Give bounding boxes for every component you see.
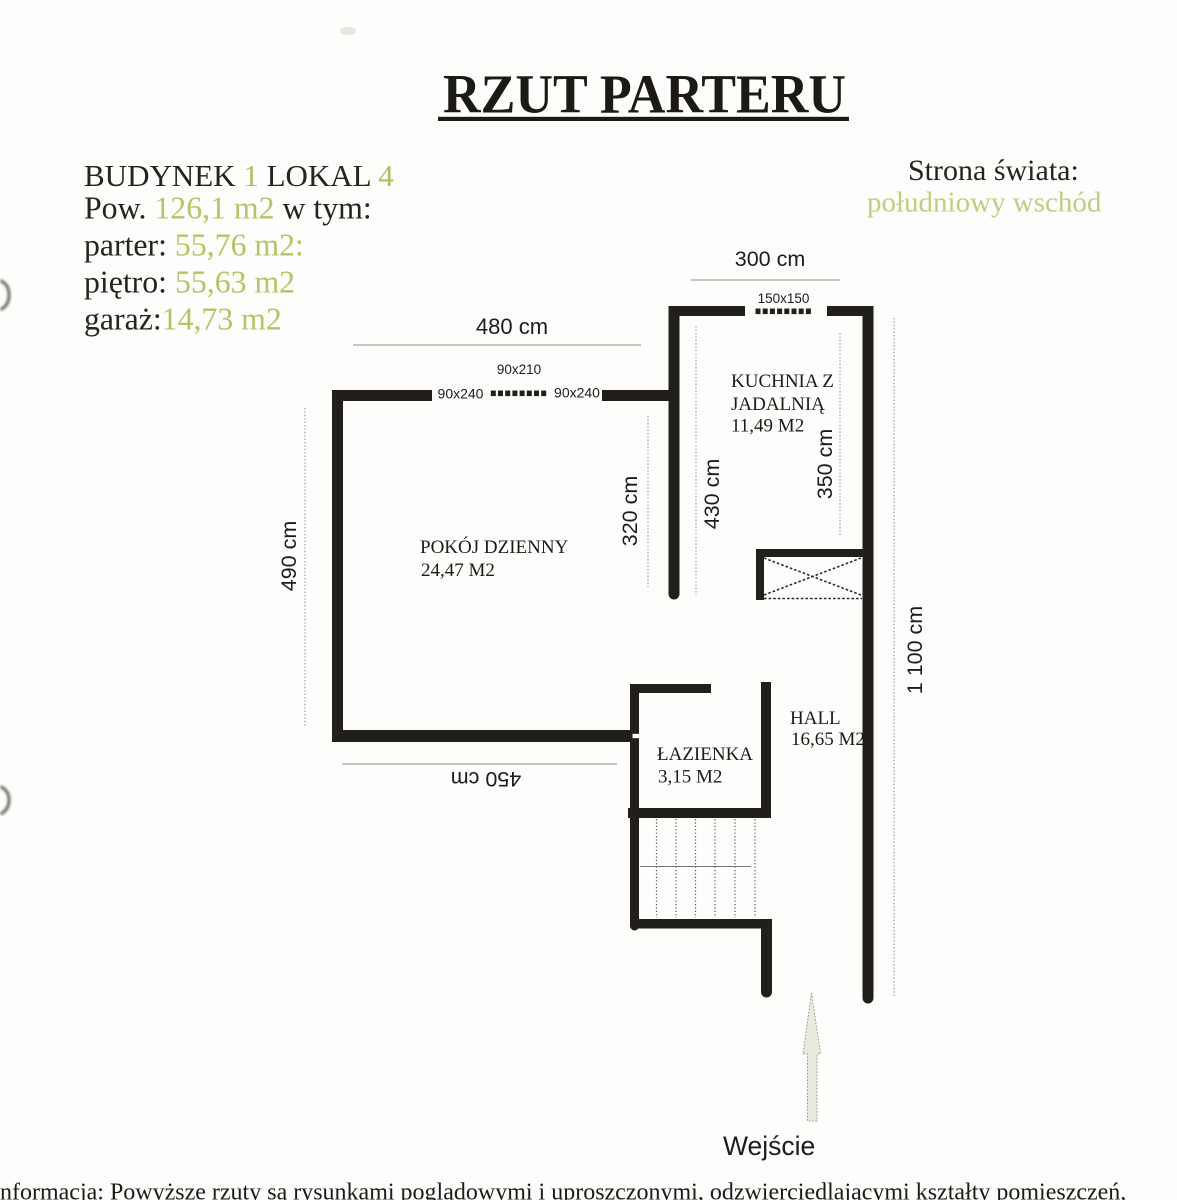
svg-text:16,65 M2: 16,65 M2 [791,729,865,750]
svg-text:490 cm: 490 cm [277,521,301,592]
svg-text:Strona świata:: Strona świata: [908,154,1079,187]
svg-text:1 100 cm: 1 100 cm [903,606,927,694]
svg-text:300 cm: 300 cm [735,247,806,271]
svg-text:350 cm: 350 cm [813,429,837,500]
svg-text:Informacja: Powyższe rzuty są: Informacja: Powyższe rzuty są rysunkami … [0,1180,1126,1200]
svg-text:piętro: 55,63 m2: piętro: 55,63 m2 [84,265,295,300]
svg-text:320 cm: 320 cm [618,476,642,547]
svg-text:90x210: 90x210 [497,362,541,377]
svg-text:450 cm: 450 cm [451,767,522,791]
svg-text:Wejście: Wejście [723,1131,815,1161]
svg-text:480 cm: 480 cm [476,314,548,339]
svg-text:garaż:14,73 m2: garaż:14,73 m2 [84,302,282,337]
svg-text:KUCHNIA Z: KUCHNIA Z [731,371,834,392]
svg-text:JADALNIĄ: JADALNIĄ [731,394,825,415]
svg-text:BUDYNEK 1 LOKAL 4: BUDYNEK 1 LOKAL 4 [84,158,394,193]
svg-text:90x240: 90x240 [554,385,600,401]
svg-text:150x150: 150x150 [758,291,810,306]
svg-text:24,47 M2: 24,47 M2 [421,560,495,581]
svg-text:3,15 M2: 3,15 M2 [658,767,722,788]
svg-text:HALL: HALL [790,708,841,729]
svg-text:90x240: 90x240 [438,386,484,402]
svg-text:parter: 55,76 m2:: parter: 55,76 m2: [84,228,304,263]
svg-text:ŁAZIENKA: ŁAZIENKA [657,744,753,765]
svg-text:południowy wschód: południowy wschód [867,187,1102,219]
svg-text:RZUT PARTERU: RZUT PARTERU [443,64,846,125]
svg-text:POKÓJ DZIENNY: POKÓJ DZIENNY [420,536,569,558]
svg-text:Pow. 126,1 m2 w tym:: Pow. 126,1 m2 w tym: [84,191,372,226]
svg-text:11,49 M2: 11,49 M2 [731,416,804,437]
svg-text:430 cm: 430 cm [700,459,724,530]
